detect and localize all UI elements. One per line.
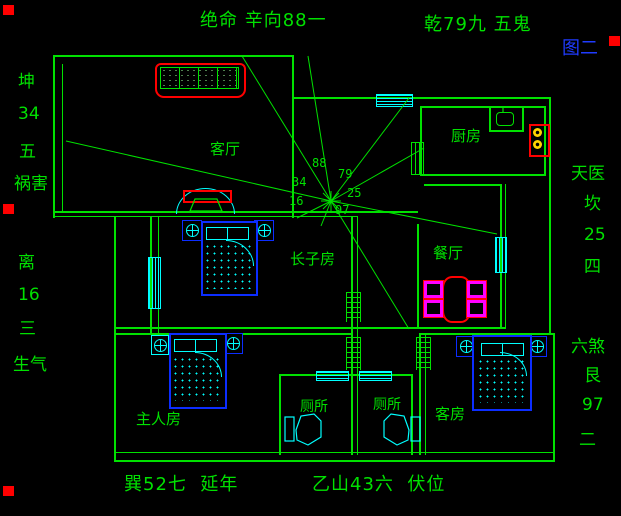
sight-line: [331, 98, 409, 201]
sight-line: [331, 201, 497, 234]
sight-line: [308, 56, 331, 201]
stool-icon: [190, 199, 222, 211]
toilet-bowl-icon: [384, 414, 409, 445]
sight-line: [331, 148, 424, 201]
sight-line: [331, 201, 409, 329]
sight-lines-overlay: [0, 0, 621, 516]
sight-line: [66, 141, 331, 201]
toilet-tank-icon: [411, 417, 420, 441]
toilet-bowl-icon: [296, 414, 321, 445]
sight-line: [297, 201, 331, 218]
sight-lines: [66, 56, 497, 329]
toilet-tank-icon: [285, 417, 294, 441]
sight-line: [242, 56, 331, 201]
floor-plan-canvas: 绝命 辛向88一 乾79九 五鬼 图二 坤 34 五 祸害 离 16 三 生气 …: [0, 0, 621, 516]
